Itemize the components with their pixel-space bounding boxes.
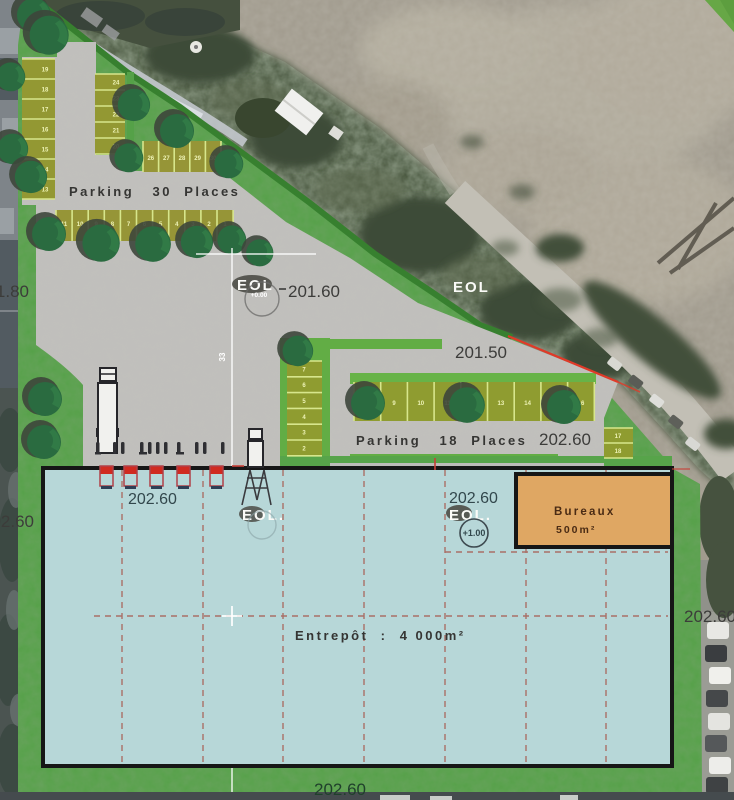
svg-text:202.60: 202.60 bbox=[0, 512, 34, 531]
svg-text:202.60: 202.60 bbox=[314, 780, 366, 799]
svg-text:Bureaux: Bureaux bbox=[554, 506, 615, 518]
svg-text:500m²: 500m² bbox=[556, 524, 596, 536]
svg-text:19: 19 bbox=[42, 68, 49, 74]
svg-text:28: 28 bbox=[179, 156, 186, 162]
svg-text:18: 18 bbox=[42, 88, 49, 94]
svg-text:201.60: 201.60 bbox=[288, 282, 340, 301]
svg-text:26: 26 bbox=[147, 156, 154, 162]
svg-text:24: 24 bbox=[113, 81, 120, 87]
svg-text:10: 10 bbox=[417, 401, 424, 407]
svg-text:Parking 30 Places: Parking 30 Places bbox=[69, 184, 240, 199]
svg-text:202.60: 202.60 bbox=[539, 430, 591, 449]
svg-text:Entrepôt : 4 000m²: Entrepôt : 4 000m² bbox=[295, 628, 466, 643]
svg-text:EOL.: EOL. bbox=[449, 507, 492, 524]
svg-text:202.60: 202.60 bbox=[128, 491, 177, 508]
svg-text:13: 13 bbox=[498, 401, 505, 407]
svg-text:13: 13 bbox=[42, 188, 49, 194]
svg-text:33: 33 bbox=[218, 352, 227, 361]
svg-text:201.80: 201.80 bbox=[0, 282, 29, 301]
svg-text:202.60: 202.60 bbox=[684, 607, 734, 626]
svg-text:17: 17 bbox=[615, 434, 622, 440]
svg-text:202.60: 202.60 bbox=[449, 490, 498, 507]
svg-text:18: 18 bbox=[615, 449, 622, 455]
svg-text:EOL: EOL bbox=[453, 279, 490, 296]
svg-text:16: 16 bbox=[42, 128, 49, 134]
svg-text:+0.00: +0.00 bbox=[251, 292, 268, 299]
svg-text:29: 29 bbox=[194, 156, 201, 162]
svg-text:15: 15 bbox=[42, 148, 49, 154]
svg-text:201.50: 201.50 bbox=[455, 343, 507, 362]
svg-text:+1.00: +1.00 bbox=[463, 528, 486, 538]
svg-text:27: 27 bbox=[163, 156, 170, 162]
svg-text:21: 21 bbox=[113, 129, 120, 135]
svg-text:Parking 18 Places: Parking 18 Places bbox=[356, 433, 527, 448]
svg-text:14: 14 bbox=[524, 401, 531, 407]
svg-text:17: 17 bbox=[42, 108, 49, 114]
